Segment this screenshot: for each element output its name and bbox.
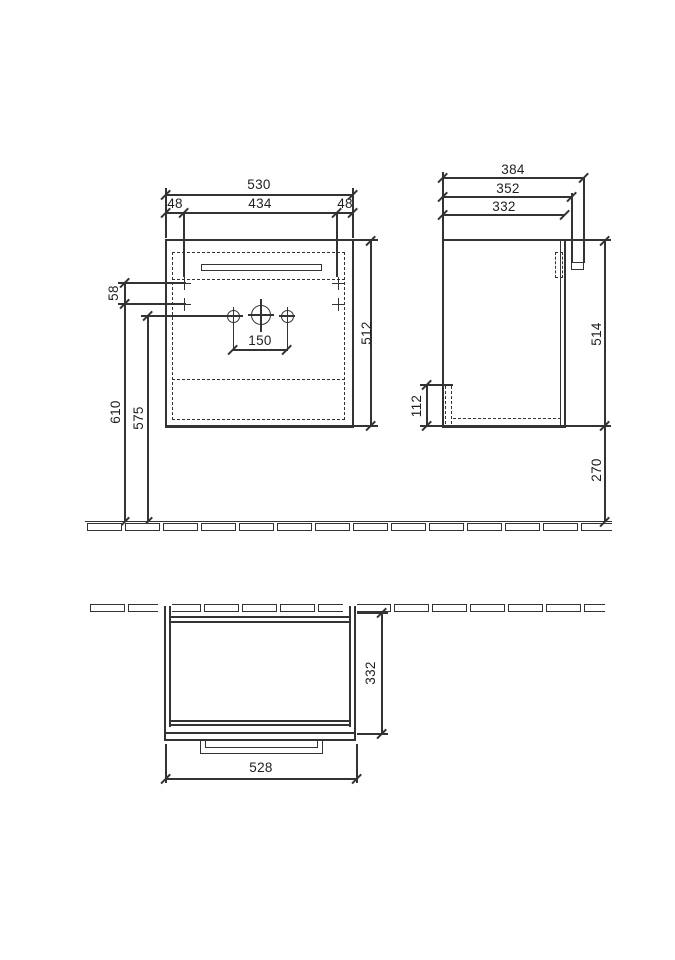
plan-back-edge-a [170,616,350,618]
wall-bracket-rail-line [571,193,573,269]
ext-512-bottom [353,425,378,426]
ext-mount-right [336,213,337,277]
dimline-recess [426,385,427,427]
dim-plan-width: 528 [241,761,281,775]
dim-front-width-inner: 434 [240,197,280,211]
dimline-depth-total [443,177,584,178]
dim-plan-depth: 332 [364,653,378,693]
side-outline-front [442,239,444,427]
mounting-rail-hidden [555,252,563,278]
technical-drawing-vanity-cabinet: 150 530 48 434 48 512 [0,0,675,960]
dim-recess-height: 112 [410,386,424,426]
front-outline-bottom [165,425,354,428]
side-outline-back [564,239,566,427]
wall-bracket-hook [571,262,584,270]
dim-hole-spacing: 150 [240,334,280,348]
dim-front-height: 512 [360,313,374,353]
dim-depth-body: 332 [484,200,524,214]
side-outline-top [442,239,566,241]
plan-front-panel-top [164,732,356,734]
wall-bracket-outer-line [583,177,585,263]
dimline-front-inner [166,212,353,213]
dimline-depth-rail [443,196,572,197]
front-hidden-shelf-bottom [172,379,345,380]
drain-hole-center [251,305,271,325]
plan-side-right-outer [354,606,356,741]
dimline-hole-height [147,316,148,522]
dimline-hole-spacing [233,349,287,350]
side-hidden-front-a [445,386,446,424]
dimline-plan-depth [381,613,382,734]
mount-cross-bottom-right [332,298,345,311]
ext-plan-depth-top [357,612,388,613]
drawer-handle-groove [201,264,322,271]
dim-mount-height: 610 [109,392,123,432]
dim-depth-rail: 352 [488,182,528,196]
front-hidden-shelf-top [172,279,345,280]
plan-front-inner-b [170,724,350,726]
dim-depth-total: 384 [493,163,533,177]
dimline-side-height [604,240,605,427]
dimline-floor-clearance [604,427,605,522]
mount-cross-top-right [332,277,345,290]
ext-plan-depth-bottom [357,733,388,734]
dim-hole-height: 575 [132,398,146,438]
dimline-mount-height [124,304,125,522]
plan-side-left-inner [169,606,171,727]
ref-mount-top [118,282,186,283]
plan-front-inner-a [170,720,350,722]
plan-side-right-inner [349,606,351,727]
plan-back-edge-b [170,621,350,623]
side-hidden-front-b [451,386,452,424]
side-outline-bottom [442,425,566,428]
ext-side-front [442,172,443,239]
dim-side-height: 514 [590,314,604,354]
floor-surface-line [85,521,612,523]
front-outline-right [352,239,354,427]
dim-floor-clearance: 270 [590,450,604,490]
floor-hatch [87,523,612,532]
ext-mount-left [183,213,184,277]
dim-mount-gap: 58 [107,278,121,308]
fixing-hole-right [281,310,294,323]
dim-front-width-total: 530 [239,178,279,192]
dimline-depth-body [443,214,565,215]
ref-mount-bottom [118,303,186,304]
dimline-plan-width [166,778,357,779]
front-outline-top [165,239,354,241]
front-outline-left [165,239,167,427]
plan-handle-inner [205,741,318,748]
ref-hole-height [141,315,243,316]
ext-512-top [353,239,378,240]
plan-side-left-outer [164,606,166,741]
side-hidden-bottom [453,418,561,419]
